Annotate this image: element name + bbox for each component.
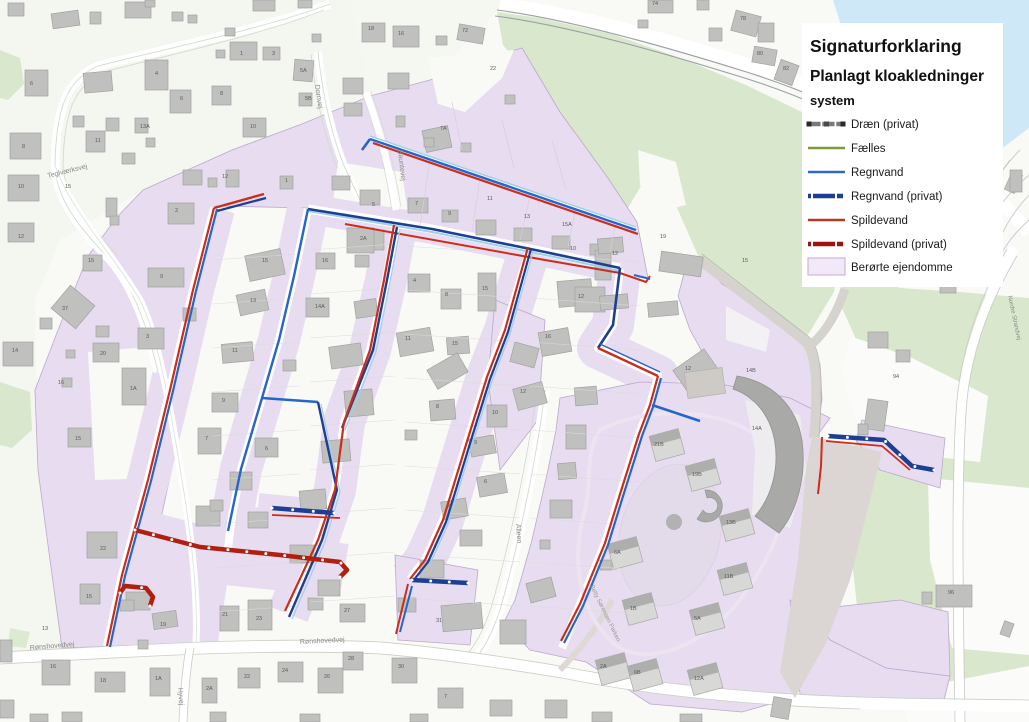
svg-text:10: 10 <box>492 410 498 416</box>
svg-text:9: 9 <box>474 440 477 446</box>
svg-text:12: 12 <box>520 389 526 395</box>
svg-text:14A: 14A <box>315 304 325 310</box>
svg-text:10: 10 <box>570 246 576 252</box>
svg-text:16: 16 <box>398 31 404 37</box>
svg-text:6: 6 <box>265 446 268 452</box>
svg-text:4: 4 <box>448 504 451 510</box>
svg-text:Regnvand: Regnvand <box>851 167 903 179</box>
svg-text:Spildevand (privat): Spildevand (privat) <box>851 239 947 251</box>
svg-text:1B: 1B <box>630 606 637 612</box>
svg-text:Dræn (privat): Dræn (privat) <box>851 119 919 131</box>
svg-text:16: 16 <box>322 258 328 264</box>
svg-text:9: 9 <box>160 274 163 280</box>
svg-text:5: 5 <box>372 202 375 208</box>
svg-text:20: 20 <box>100 351 106 357</box>
svg-text:Planlagt kloakledninger: Planlagt kloakledninger <box>810 68 984 85</box>
svg-text:1: 1 <box>285 178 288 184</box>
svg-text:4: 4 <box>155 71 158 77</box>
svg-text:15A: 15A <box>562 222 572 228</box>
svg-text:8: 8 <box>436 404 439 410</box>
svg-text:Regnvand (privat): Regnvand (privat) <box>851 191 943 203</box>
svg-text:11: 11 <box>232 348 238 354</box>
svg-text:11B: 11B <box>724 574 734 580</box>
svg-text:82: 82 <box>783 66 789 72</box>
svg-text:74: 74 <box>652 1 658 7</box>
svg-text:7: 7 <box>415 201 418 207</box>
svg-text:1A: 1A <box>130 386 137 392</box>
svg-text:6: 6 <box>180 96 183 102</box>
svg-text:14: 14 <box>12 348 18 354</box>
svg-text:30: 30 <box>398 664 404 670</box>
svg-text:16: 16 <box>545 334 551 340</box>
svg-text:15: 15 <box>262 258 268 264</box>
svg-text:Alleen: Alleen <box>514 524 522 544</box>
svg-text:26: 26 <box>324 674 330 680</box>
svg-text:19: 19 <box>160 622 166 628</box>
svg-text:94: 94 <box>893 374 899 380</box>
svg-text:5A: 5A <box>300 68 307 74</box>
svg-text:11: 11 <box>95 138 101 144</box>
svg-text:18: 18 <box>100 678 106 684</box>
svg-text:28: 28 <box>348 656 354 662</box>
svg-text:7: 7 <box>444 694 447 700</box>
svg-text:10: 10 <box>18 184 24 190</box>
svg-text:8: 8 <box>445 292 448 298</box>
svg-text:37: 37 <box>62 306 68 312</box>
svg-text:22: 22 <box>100 546 106 552</box>
svg-text:1A: 1A <box>155 676 162 682</box>
svg-text:15: 15 <box>482 286 488 292</box>
svg-text:19: 19 <box>660 234 666 240</box>
svg-text:16: 16 <box>58 380 64 386</box>
svg-text:12A: 12A <box>694 676 704 682</box>
svg-text:Spildevand: Spildevand <box>851 215 908 227</box>
svg-text:15: 15 <box>75 436 81 442</box>
svg-text:78: 78 <box>740 16 746 22</box>
svg-text:23: 23 <box>256 616 262 622</box>
svg-text:15: 15 <box>86 594 92 600</box>
svg-text:3: 3 <box>272 51 275 57</box>
svg-text:11: 11 <box>405 336 411 342</box>
svg-text:11: 11 <box>487 196 493 202</box>
svg-text:15: 15 <box>452 341 458 347</box>
svg-text:10: 10 <box>250 124 256 130</box>
svg-text:27: 27 <box>344 608 350 614</box>
svg-text:96: 96 <box>948 590 954 596</box>
svg-text:6: 6 <box>30 81 33 87</box>
svg-text:2A: 2A <box>600 664 607 670</box>
svg-text:21B: 21B <box>654 442 664 448</box>
svg-text:Fælles: Fælles <box>851 143 886 155</box>
svg-text:13A: 13A <box>140 124 150 130</box>
svg-text:21: 21 <box>222 612 228 618</box>
svg-text:9: 9 <box>448 211 451 217</box>
svg-text:Berørte ejendomme: Berørte ejendomme <box>851 262 953 274</box>
svg-text:15: 15 <box>88 258 94 264</box>
svg-text:14A: 14A <box>752 426 762 432</box>
svg-text:12: 12 <box>612 251 618 257</box>
svg-text:80: 80 <box>757 51 763 57</box>
svg-text:72: 72 <box>462 28 468 34</box>
svg-text:16: 16 <box>50 664 56 670</box>
svg-text:7A: 7A <box>440 126 447 132</box>
svg-text:2A: 2A <box>206 686 213 692</box>
svg-text:22: 22 <box>244 674 250 680</box>
svg-text:14B: 14B <box>746 368 756 374</box>
svg-text:13B: 13B <box>726 520 736 526</box>
svg-text:6: 6 <box>484 479 487 485</box>
svg-text:system: system <box>810 93 855 108</box>
svg-text:3: 3 <box>146 334 149 340</box>
svg-text:15: 15 <box>742 258 748 264</box>
svg-text:7: 7 <box>205 436 208 442</box>
svg-text:8: 8 <box>22 144 25 150</box>
svg-text:8: 8 <box>220 91 223 97</box>
svg-text:15: 15 <box>65 184 71 190</box>
svg-text:Signaturforklaring: Signaturforklaring <box>810 36 962 56</box>
svg-text:12: 12 <box>578 294 584 300</box>
svg-text:13: 13 <box>524 214 530 220</box>
svg-text:6B: 6B <box>634 670 641 676</box>
svg-text:22: 22 <box>490 66 496 72</box>
svg-text:18: 18 <box>368 26 374 32</box>
svg-text:1: 1 <box>240 51 243 57</box>
svg-text:5A: 5A <box>694 616 701 622</box>
svg-text:6A: 6A <box>614 550 621 556</box>
svg-text:2: 2 <box>175 208 178 214</box>
svg-text:13: 13 <box>42 626 48 632</box>
svg-text:4: 4 <box>413 278 416 284</box>
svg-text:24: 24 <box>282 668 288 674</box>
svg-text:19B: 19B <box>692 472 702 478</box>
svg-text:31: 31 <box>436 618 442 624</box>
svg-text:9: 9 <box>222 398 225 404</box>
svg-text:12: 12 <box>222 174 228 180</box>
svg-text:12: 12 <box>685 366 691 372</box>
svg-text:5B: 5B <box>305 96 312 102</box>
svg-text:2A: 2A <box>360 236 367 242</box>
svg-text:12: 12 <box>18 234 24 240</box>
svg-text:13: 13 <box>250 298 256 304</box>
